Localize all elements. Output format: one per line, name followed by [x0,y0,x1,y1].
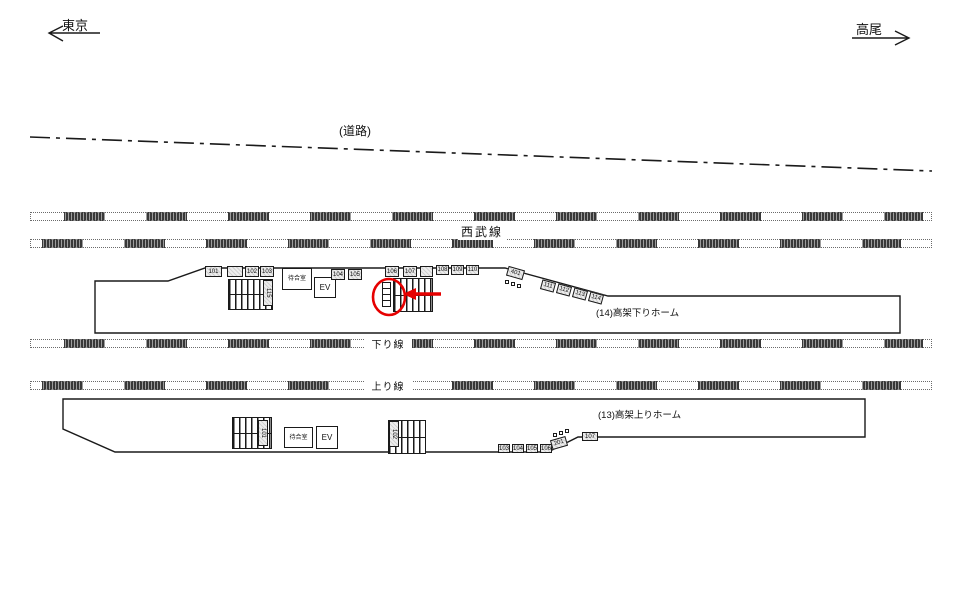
upper-elevator: EV [314,277,336,298]
road-line [30,137,932,171]
up-track [30,381,932,390]
upper-staircase-west [228,279,273,310]
direction-label-left: 東京 [62,15,88,34]
lower-platform-label: (13)高架上りホーム [598,407,681,421]
lower-elevator: EV [316,426,338,449]
down-track [30,339,932,348]
highlighted-sign-post [382,282,391,307]
down-track-label: 下り線 [364,335,412,351]
upper-platform-outline [95,268,900,333]
road-label: (道路) [339,122,371,139]
lower-staircase-center [388,420,426,454]
upper-platform-label: (14)高架下りホーム [596,305,679,319]
upper-waiting-room: 待合室 [282,268,312,290]
seibu-line-label: 西武線 [458,223,506,240]
direction-label-right: 高尾 [856,19,882,38]
seibu-track-1 [30,212,932,221]
lower-staircase-west [232,417,272,449]
seibu-track-2 [30,239,932,248]
lower-platform-outline [63,399,865,452]
station-layout-diagram: 東京 高尾 (道路) 西武線 下り線 上り線 待合室 EV (14)高架下りホー… [0,0,960,605]
lower-waiting-room: 待合室 [284,427,313,448]
upper-staircase-center [393,278,433,312]
diagram-linework [0,0,960,605]
up-track-label: 上り線 [364,377,412,393]
